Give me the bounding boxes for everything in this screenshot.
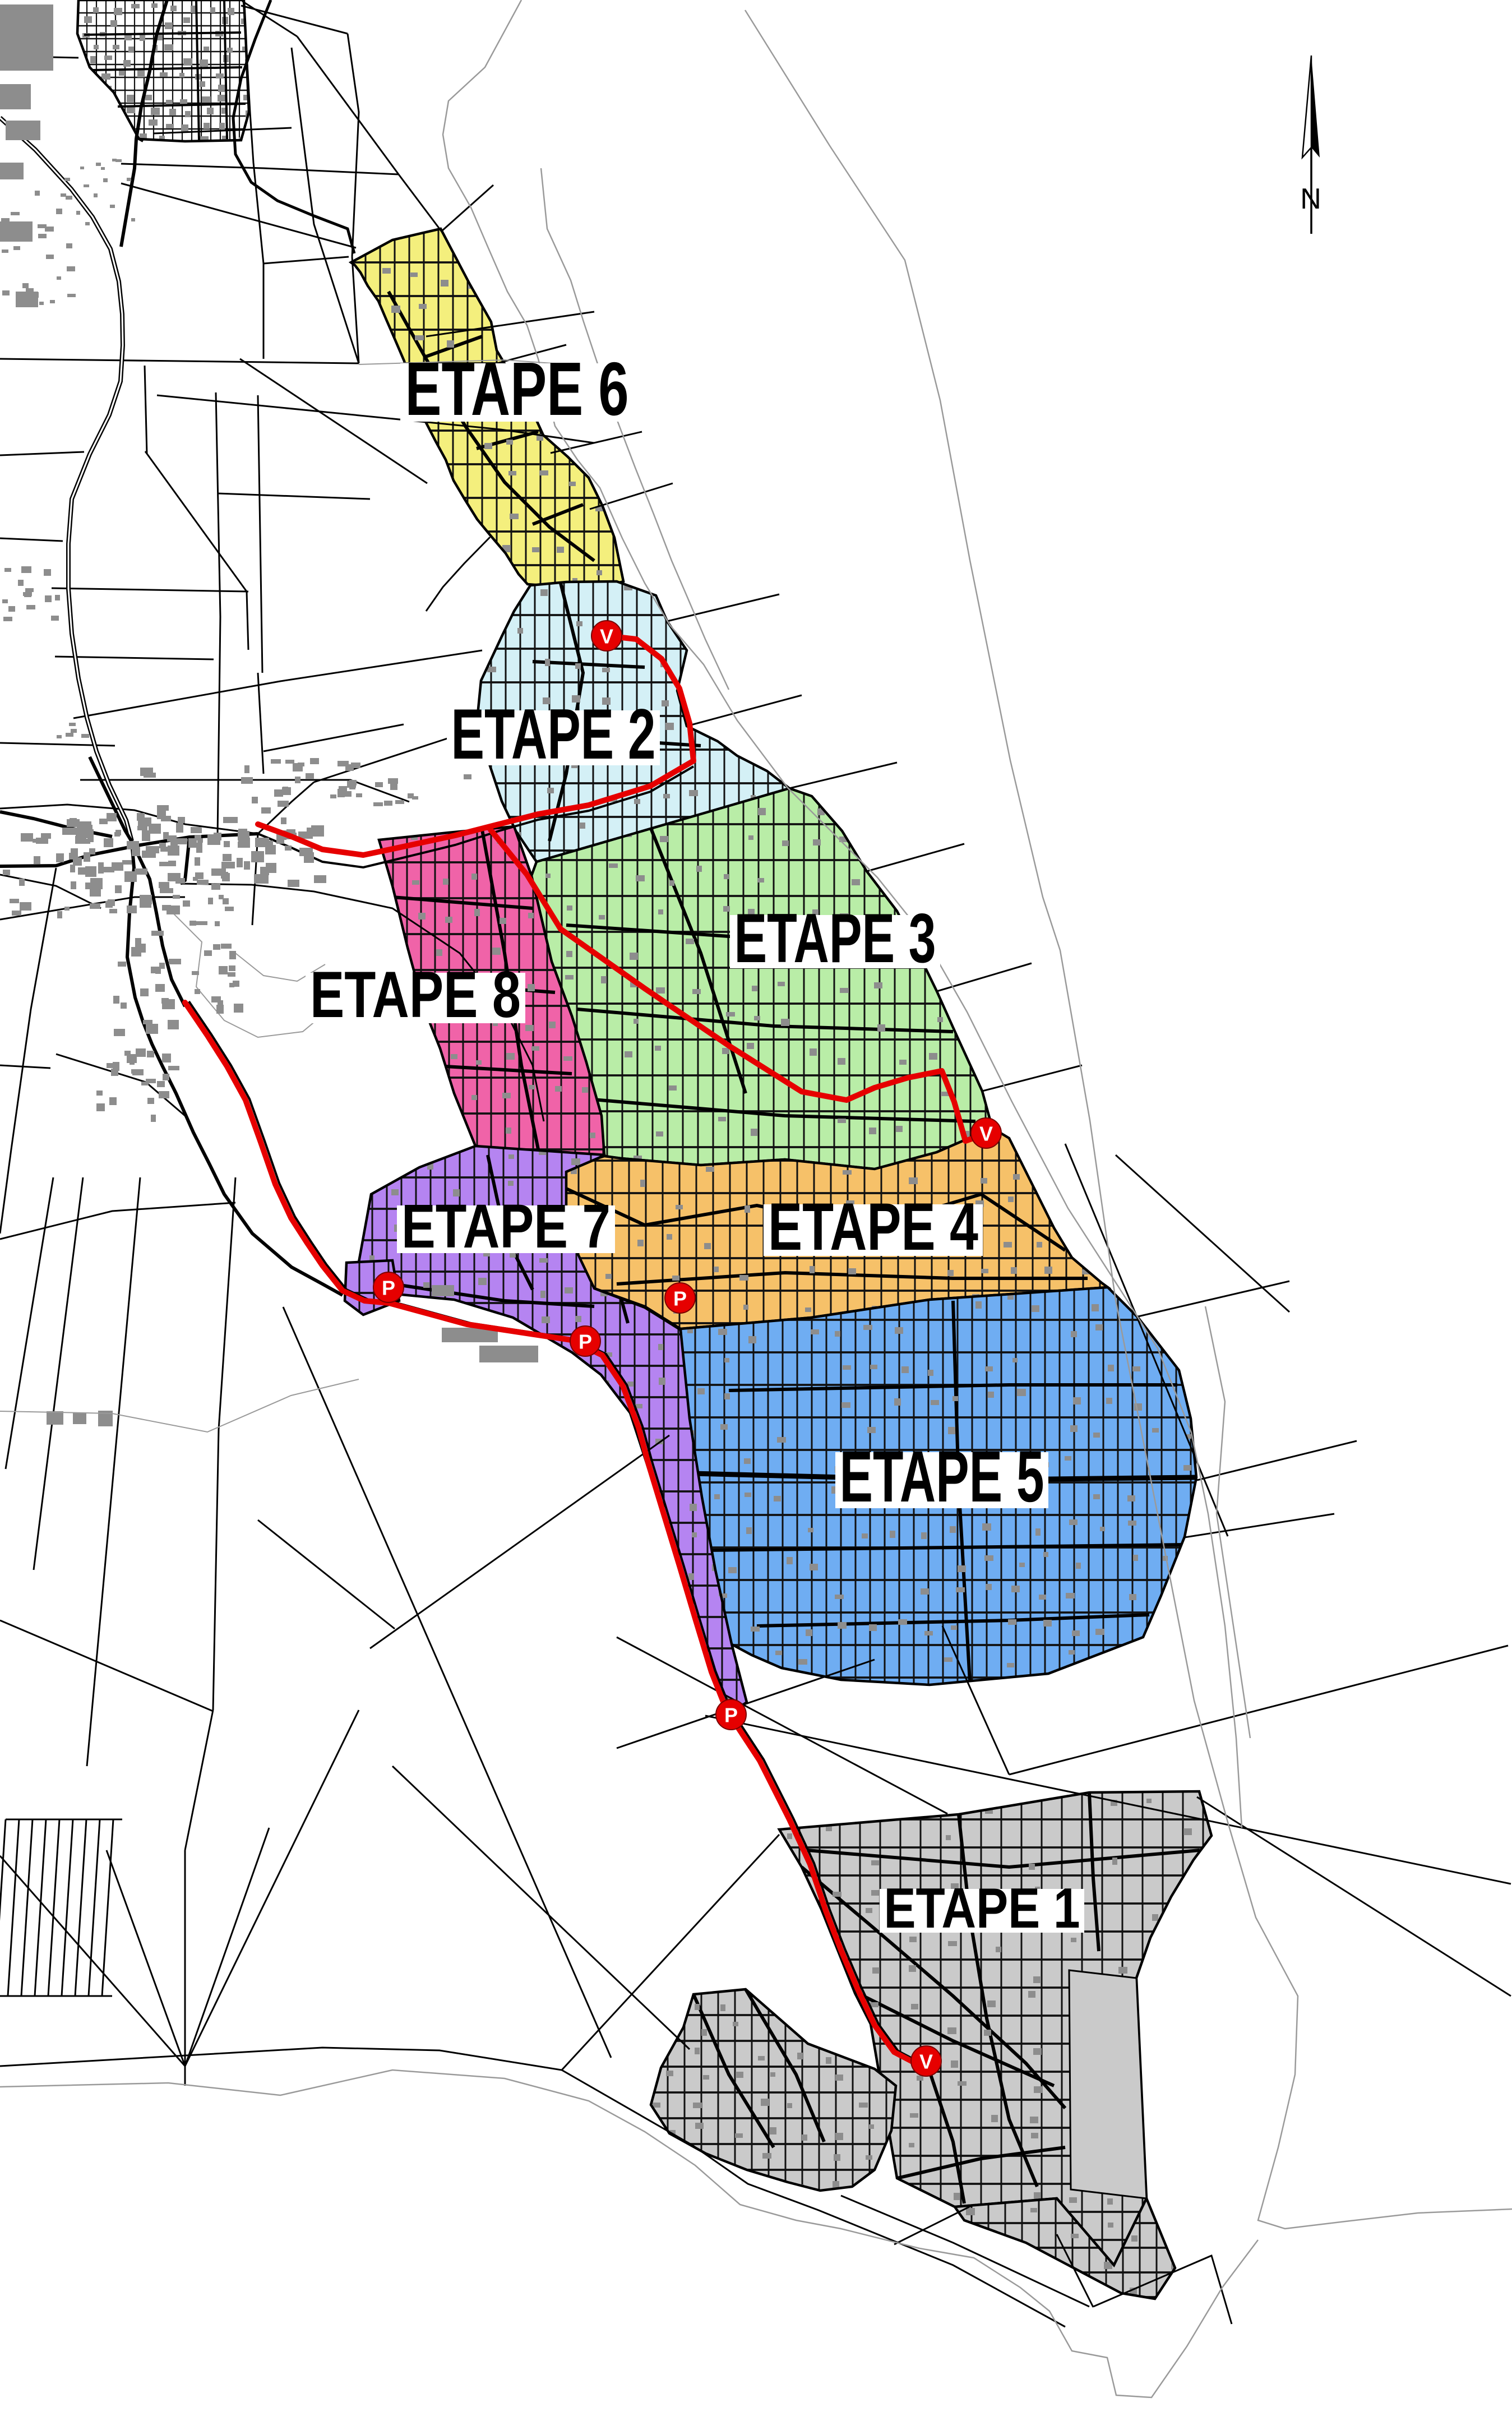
svg-text:ETAPE 1: ETAPE 1 [884,1877,1080,1940]
svg-text:ETAPE 6: ETAPE 6 [405,346,629,431]
svg-text:V: V [600,625,613,648]
svg-text:ETAPE 7: ETAPE 7 [401,1192,611,1261]
svg-text:ETAPE 4: ETAPE 4 [768,1189,978,1264]
svg-text:N: N [1300,183,1321,215]
svg-text:P: P [382,1277,395,1300]
svg-text:P: P [724,1704,738,1727]
svg-text:V: V [919,2050,933,2073]
svg-text:P: P [579,1330,592,1353]
svg-text:ETAPE 5: ETAPE 5 [840,1435,1044,1517]
svg-text:ETAPE 3: ETAPE 3 [734,900,936,977]
svg-text:ETAPE 8: ETAPE 8 [310,958,521,1031]
svg-text:V: V [979,1122,993,1145]
svg-text:ETAPE 2: ETAPE 2 [451,694,656,774]
svg-text:P: P [673,1287,687,1310]
